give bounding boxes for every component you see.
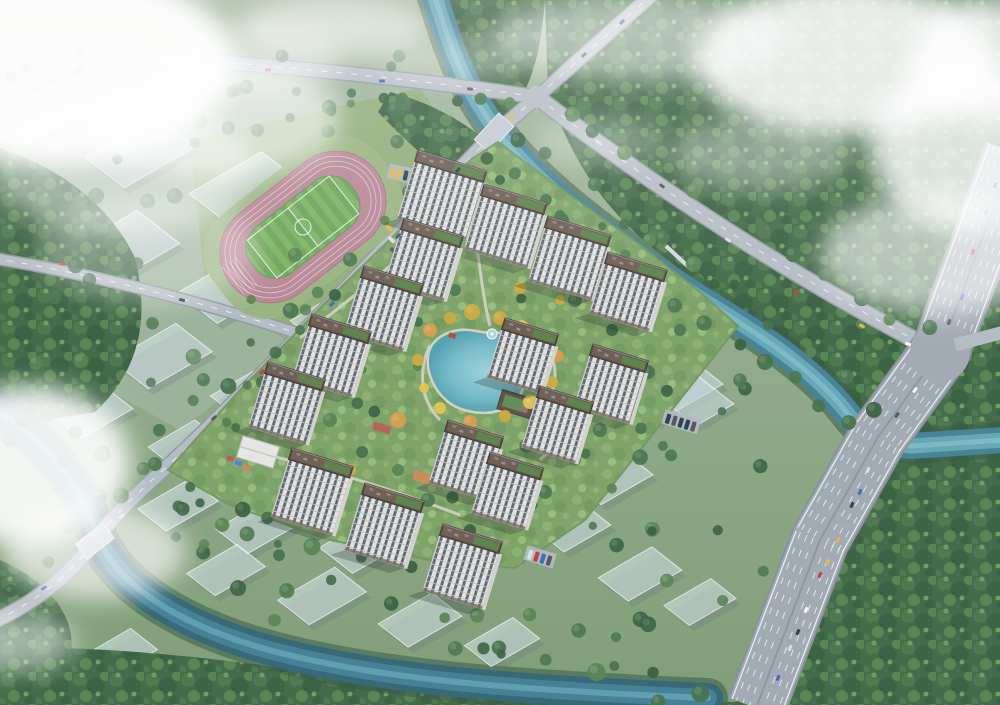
cloud [5,504,185,600]
cloud [533,118,663,166]
clouds [0,0,1000,705]
cloud [670,120,850,190]
aerial-rendering [0,0,1000,705]
cloud [380,38,520,82]
rendering-canvas [0,0,1000,705]
cloud [40,195,260,305]
cloud [160,25,340,95]
